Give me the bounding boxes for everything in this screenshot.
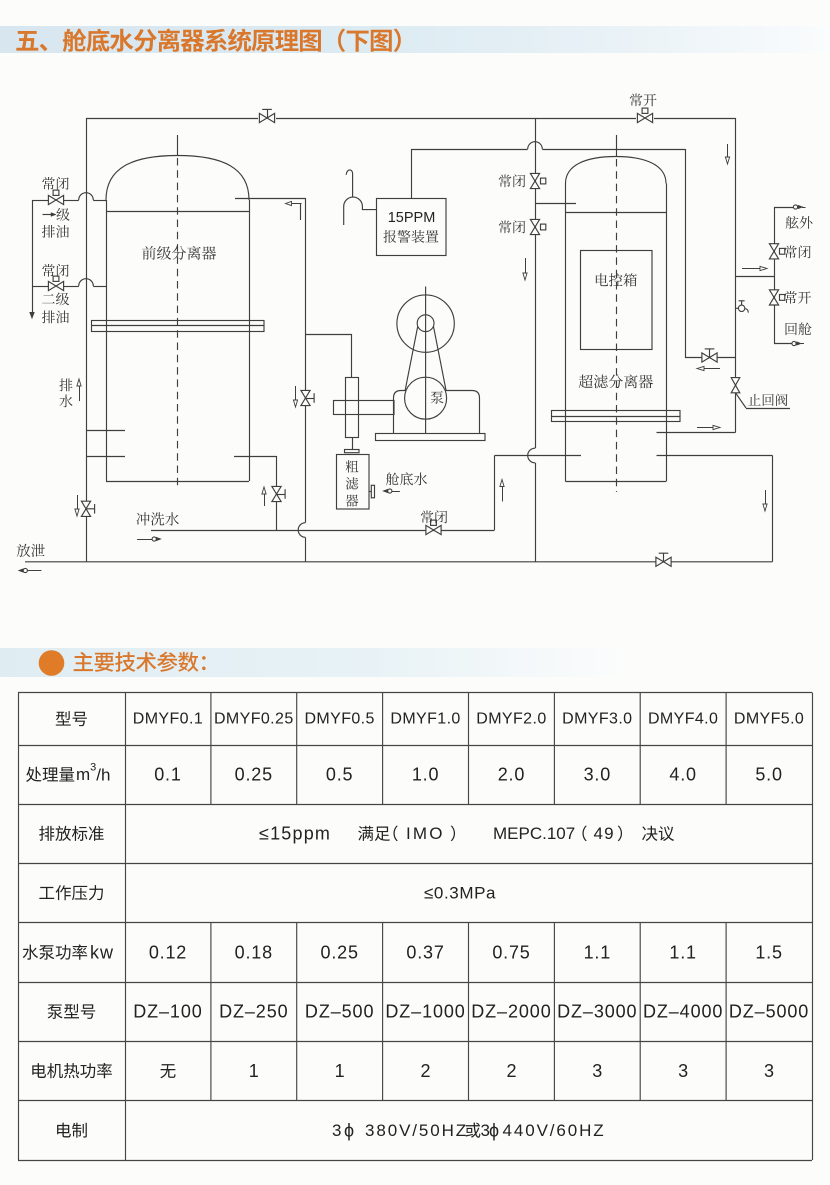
svg-text:1.0: 1.0 xyxy=(412,765,439,785)
svg-text:kw: kw xyxy=(90,942,114,962)
svg-text:DMYF0.25: DMYF0.25 xyxy=(214,710,294,727)
svg-text:DZ–4000: DZ–4000 xyxy=(643,1002,723,1022)
svg-text:DZ–5000: DZ–5000 xyxy=(729,1002,809,1022)
svg-text:IMO: IMO xyxy=(406,824,445,843)
svg-text:DMYF0.5: DMYF0.5 xyxy=(304,710,374,727)
svg-text:49: 49 xyxy=(594,824,615,843)
svg-text:5.0: 5.0 xyxy=(755,765,782,785)
svg-text:DZ–250: DZ–250 xyxy=(219,1002,288,1022)
svg-text:1.5: 1.5 xyxy=(755,942,782,962)
svg-text:1: 1 xyxy=(335,1061,345,1081)
svg-text:0.25: 0.25 xyxy=(235,765,273,785)
svg-text:3: 3 xyxy=(592,1061,602,1081)
svg-text:MEPC.107: MEPC.107 xyxy=(493,824,575,843)
svg-text:3: 3 xyxy=(332,1121,341,1140)
svg-text:DZ–2000: DZ–2000 xyxy=(471,1002,551,1022)
svg-text:≤15ppm: ≤15ppm xyxy=(259,824,331,844)
svg-text:DZ–3000: DZ–3000 xyxy=(557,1002,637,1022)
svg-text:DMYF2.0: DMYF2.0 xyxy=(476,710,546,727)
svg-text:0.12: 0.12 xyxy=(149,942,187,962)
svg-text:≤0.3MPa: ≤0.3MPa xyxy=(424,883,496,902)
svg-text:1.1: 1.1 xyxy=(584,942,611,962)
svg-text:0.5: 0.5 xyxy=(326,765,353,785)
svg-text:DMYF3.0: DMYF3.0 xyxy=(562,710,632,727)
svg-text:3: 3 xyxy=(764,1061,774,1081)
svg-text:15PPM: 15PPM xyxy=(388,210,436,226)
svg-text:3.0: 3.0 xyxy=(584,765,611,785)
svg-text:0.37: 0.37 xyxy=(406,942,444,962)
svg-text:DZ–1000: DZ–1000 xyxy=(385,1002,465,1022)
svg-text:0.18: 0.18 xyxy=(235,942,273,962)
svg-text:2: 2 xyxy=(506,1061,516,1081)
svg-text:DZ–100: DZ–100 xyxy=(133,1002,202,1022)
svg-text:1.1: 1.1 xyxy=(669,942,696,962)
svg-text:3: 3 xyxy=(678,1061,688,1081)
svg-text:1: 1 xyxy=(249,1061,259,1081)
svg-text:DZ–500: DZ–500 xyxy=(305,1002,374,1022)
svg-text:4.0: 4.0 xyxy=(669,765,696,785)
svg-text:DMYF1.0: DMYF1.0 xyxy=(390,710,460,727)
svg-text:2: 2 xyxy=(421,1061,431,1081)
svg-text:ϕ: ϕ xyxy=(344,1120,354,1140)
svg-text:0.75: 0.75 xyxy=(492,942,530,962)
svg-text:DMYF5.0: DMYF5.0 xyxy=(734,710,804,727)
svg-text:ϕ: ϕ xyxy=(489,1120,499,1140)
svg-text:0.1: 0.1 xyxy=(154,765,181,785)
svg-text:DMYF0.1: DMYF0.1 xyxy=(133,710,203,727)
svg-text:2.0: 2.0 xyxy=(498,765,525,785)
svg-text:DMYF4.0: DMYF4.0 xyxy=(648,710,718,727)
svg-text:380V/50HZ: 380V/50HZ xyxy=(365,1121,468,1140)
svg-text:0.25: 0.25 xyxy=(321,942,359,962)
svg-text:440V/60HZ: 440V/60HZ xyxy=(503,1121,606,1140)
